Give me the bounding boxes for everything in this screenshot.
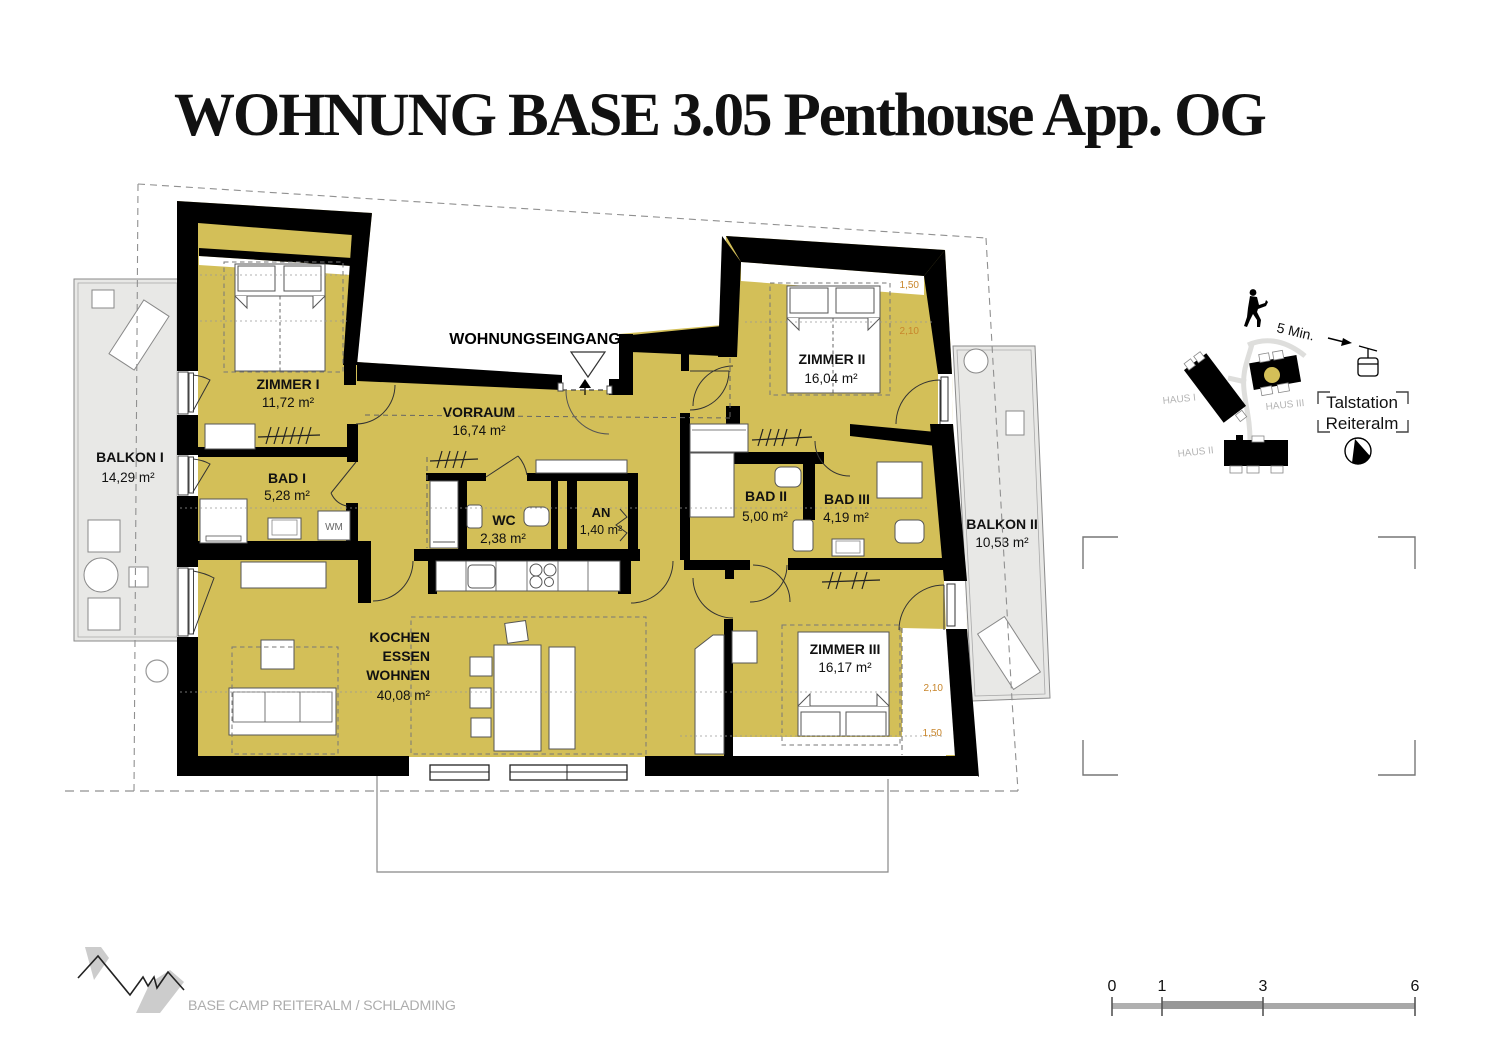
svg-text:40,08 m²: 40,08 m² <box>377 688 431 703</box>
svg-text:11,72 m²: 11,72 m² <box>262 395 315 410</box>
svg-text:1,50: 1,50 <box>923 728 943 739</box>
svg-text:1,50: 1,50 <box>900 280 920 291</box>
svg-text:3: 3 <box>1259 978 1268 995</box>
svg-text:0: 0 <box>1108 978 1117 995</box>
svg-text:16,17 m²: 16,17 m² <box>818 660 872 675</box>
svg-text:BALKON I: BALKON I <box>96 449 164 465</box>
svg-text:14,29 m²: 14,29 m² <box>101 470 155 485</box>
svg-text:KOCHEN: KOCHEN <box>369 629 430 645</box>
svg-text:HAUS III: HAUS III <box>1265 398 1305 413</box>
svg-text:AN: AN <box>592 505 611 520</box>
svg-text:HAUS I: HAUS I <box>1162 393 1196 407</box>
svg-text:Talstation: Talstation <box>1326 393 1398 412</box>
svg-text:4,19 m²: 4,19 m² <box>823 510 869 525</box>
svg-text:BAD I: BAD I <box>268 470 306 486</box>
svg-text:10,53 m²: 10,53 m² <box>975 535 1029 550</box>
svg-text:5,28 m²: 5,28 m² <box>264 488 310 503</box>
svg-text:16,74 m²: 16,74 m² <box>452 423 506 438</box>
svg-text:1: 1 <box>1158 978 1167 995</box>
svg-text:WOHNUNGSEINGANG: WOHNUNGSEINGANG <box>449 331 621 348</box>
svg-text:2,10: 2,10 <box>900 326 920 337</box>
svg-text:Reiteralm: Reiteralm <box>1326 414 1399 433</box>
svg-text:ZIMMER II: ZIMMER II <box>799 351 866 367</box>
svg-text:BAD III: BAD III <box>824 491 870 507</box>
svg-text:1,40 m²: 1,40 m² <box>580 523 622 537</box>
svg-text:2,10: 2,10 <box>924 683 944 694</box>
svg-text:ZIMMER III: ZIMMER III <box>810 641 881 657</box>
svg-text:5 Min.: 5 Min. <box>1275 319 1316 343</box>
svg-text:VORRAUM: VORRAUM <box>443 404 515 420</box>
svg-text:HAUS II: HAUS II <box>1177 445 1214 460</box>
svg-text:16,04 m²: 16,04 m² <box>804 371 858 386</box>
svg-text:BAD II: BAD II <box>745 488 787 504</box>
svg-text:6: 6 <box>1411 978 1420 995</box>
svg-text:WM: WM <box>325 522 343 533</box>
svg-text:ZIMMER I: ZIMMER I <box>257 376 320 392</box>
svg-text:2,38 m²: 2,38 m² <box>480 531 526 546</box>
svg-text:WC: WC <box>492 512 515 528</box>
svg-text:WOHNEN: WOHNEN <box>366 667 430 683</box>
svg-text:ESSEN: ESSEN <box>383 648 430 664</box>
svg-text:BASE CAMP REITERALM / SCHLADMI: BASE CAMP REITERALM / SCHLADMING <box>188 998 456 1014</box>
svg-text:5,00 m²: 5,00 m² <box>742 509 788 524</box>
